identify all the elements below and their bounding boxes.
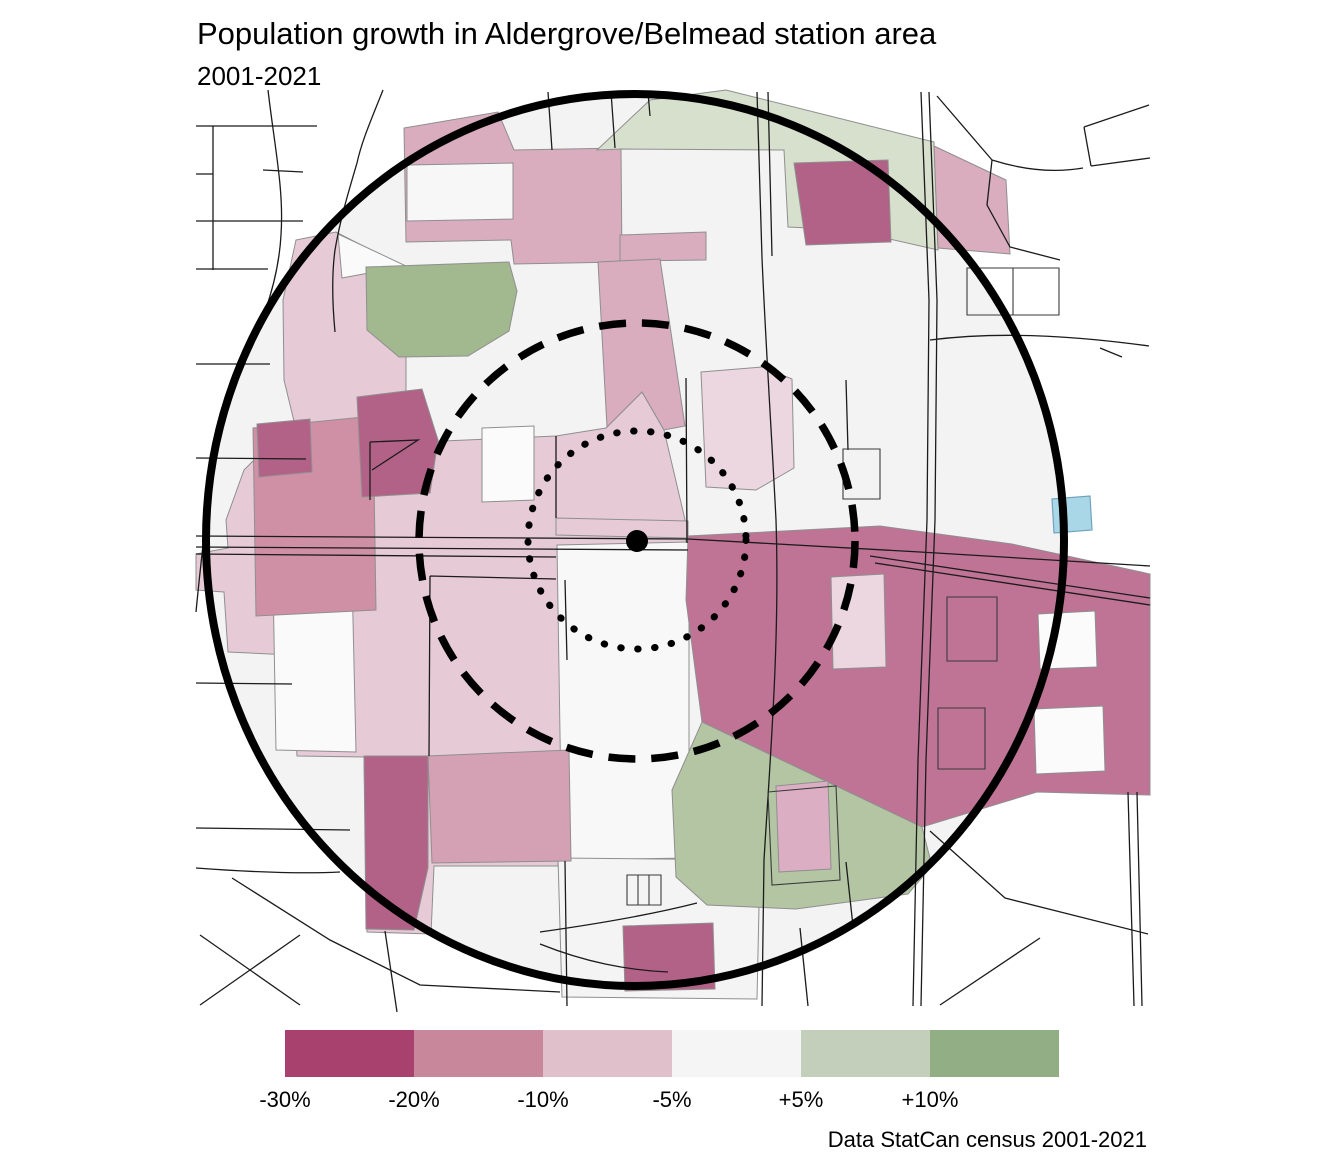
legend-label: -20% bbox=[388, 1087, 439, 1112]
page-title: Population growth in Aldergrove/Belmead … bbox=[197, 16, 937, 51]
census-area bbox=[701, 367, 794, 490]
legend-label: -10% bbox=[517, 1087, 568, 1112]
map-canvas: Population growth in Aldergrove/Belmead … bbox=[0, 0, 1344, 1152]
legend-swatch-4 bbox=[672, 1030, 801, 1077]
census-area bbox=[557, 542, 689, 860]
legend-swatch-6 bbox=[930, 1030, 1059, 1077]
census-area bbox=[428, 750, 571, 863]
census-area bbox=[556, 518, 688, 538]
water-polygon bbox=[1052, 496, 1092, 533]
legend-swatch-3 bbox=[543, 1030, 672, 1077]
data-source-caption: Data StatCan census 2001-2021 bbox=[828, 1127, 1147, 1152]
legend-label: -5% bbox=[652, 1087, 691, 1112]
population-growth-map-page: Population growth in Aldergrove/Belmead … bbox=[0, 0, 1344, 1152]
census-area bbox=[364, 756, 428, 930]
census-area bbox=[482, 426, 534, 502]
census-area bbox=[407, 163, 513, 221]
page-subtitle: 2001-2021 bbox=[197, 61, 321, 91]
census-area bbox=[1034, 706, 1105, 774]
census-area bbox=[257, 419, 312, 477]
legend-label: +5% bbox=[779, 1087, 824, 1112]
census-area bbox=[776, 781, 831, 872]
legend-swatch-5 bbox=[801, 1030, 930, 1077]
census-area bbox=[831, 574, 886, 669]
legend-swatch-1 bbox=[285, 1030, 414, 1077]
census-area bbox=[620, 232, 706, 261]
legend-swatch-2 bbox=[414, 1030, 543, 1077]
station-marker bbox=[626, 530, 648, 552]
legend-label: -30% bbox=[259, 1087, 310, 1112]
legend-label: +10% bbox=[902, 1087, 959, 1112]
